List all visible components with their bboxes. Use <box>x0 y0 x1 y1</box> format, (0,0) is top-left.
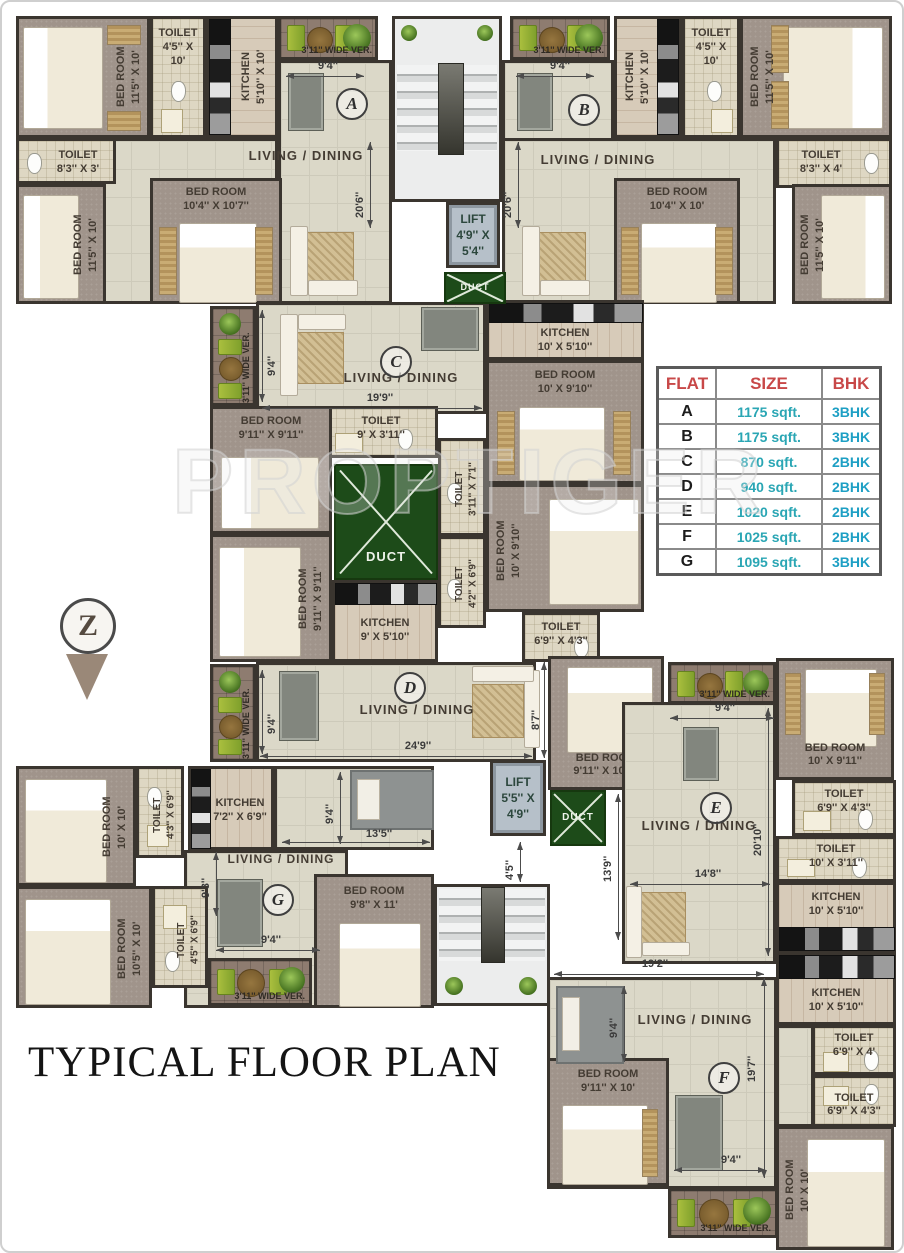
core-toilet-lower: TOILET4'2'' X 6'9'' <box>438 536 486 628</box>
flat-b-bedroom-1: BED ROOM11'5'' X 10' <box>740 16 892 138</box>
room-label: BED ROOM10'4'' X 10'7'' <box>153 186 279 214</box>
dim-label: 13'5'' <box>354 828 404 840</box>
toilet-icon <box>171 81 186 102</box>
room-label: BED ROOM11'5'' X 10' <box>114 25 145 129</box>
dim-label: 20'6'' <box>502 148 514 218</box>
room-label: BED ROOM10'4'' X 10' <box>617 186 737 214</box>
room-label: BED ROOM10'5'' X 10' <box>115 897 146 1001</box>
plant-icon <box>743 1197 771 1225</box>
flat-c-kitchen: KITCHEN10' X 5'10'' <box>486 300 644 360</box>
table-row: G1095 sqft.3BHK <box>658 549 881 575</box>
living-label: LIVING / DINING <box>628 1012 762 1028</box>
room-label: TOILET6'9'' X 4'3'' <box>795 788 893 816</box>
dim-label: 14'8'' <box>678 868 738 880</box>
bed <box>219 547 301 657</box>
room-label: KITCHEN5'10'' X 10' <box>623 27 654 127</box>
toilet-icon <box>864 153 879 174</box>
plant-icon <box>219 313 241 335</box>
dim-line <box>516 76 594 77</box>
dim-line <box>262 670 263 754</box>
chair <box>218 739 242 755</box>
dim-label: 9'4'' <box>700 702 750 714</box>
room-label: TOILET4'2'' X 6'9'' <box>453 543 481 625</box>
dim-label: 9'4'' <box>324 788 336 824</box>
room-label: KITCHEN10' X 5'10'' <box>779 891 893 919</box>
plant-icon <box>401 25 417 41</box>
room-label: BED ROOM9'11'' X 10' <box>550 1068 666 1096</box>
flat-letter-g: G <box>262 884 294 916</box>
flat-b-verandah: 3'11'' WIDE VER. <box>510 16 610 60</box>
rug <box>785 673 801 735</box>
flat-a-kitchen: KITCHEN5'10'' X 10' <box>206 16 278 138</box>
flat-b-bedroom-3: BED ROOM10'4'' X 10' <box>614 178 740 304</box>
lift-2: LIFT 5'5'' X 4'9'' <box>490 760 546 836</box>
room-label: BED ROOM11'5'' X 10' <box>748 25 779 129</box>
bed <box>23 27 103 129</box>
dim-line <box>674 1170 766 1171</box>
north-arrow-icon <box>66 654 108 700</box>
dim-label: 20'10'' <box>752 808 764 856</box>
staircase <box>392 16 502 202</box>
stair-landing <box>481 887 505 963</box>
dining-table <box>280 672 318 740</box>
sofa <box>472 666 534 682</box>
flat-e-toilet-1: TOILET6'9'' X 4'3'' <box>792 780 896 836</box>
room-label: TOILET6'9'' X 4'3'' <box>815 1092 893 1120</box>
toilet-icon <box>27 153 42 174</box>
bed <box>821 195 885 299</box>
kitchen-counter <box>779 927 895 951</box>
page-title: TYPICAL FLOOR PLAN <box>28 1038 501 1087</box>
flat-d-verandah: 3'11'' WIDE VER. <box>210 664 256 762</box>
duct-top: DUCT <box>444 272 506 304</box>
sofa <box>626 886 642 958</box>
verandah-label: 3'11'' WIDE VER. <box>241 315 251 403</box>
dim-label: 9'4'' <box>608 1002 620 1038</box>
dim-label: 9'4'' <box>530 60 590 72</box>
flat-f-verandah: 3'11'' WIDE VER. <box>668 1188 778 1238</box>
lift-label: LIFT 4'9'' X 5'4'' <box>449 211 497 260</box>
dim-label: 9'3'' <box>200 864 212 898</box>
rug <box>715 227 733 295</box>
sink-icon <box>711 109 733 133</box>
dim-line <box>262 408 482 409</box>
room-label: TOILET8'3'' X 4' <box>781 149 861 177</box>
sofa <box>357 779 380 820</box>
dim-line <box>670 718 774 719</box>
flat-a-toilet-1: TOILET4'5'' X 10' <box>150 16 206 138</box>
room-label: TOILET4'3'' X 6'9'' <box>151 773 179 857</box>
room-label: TOILET4'5'' X 10' <box>155 27 201 68</box>
bed <box>221 457 319 529</box>
duct-label: DUCT <box>446 282 504 292</box>
north-indicator-icon: Z <box>60 598 116 654</box>
verandah-label: 3'11'' WIDE VER. <box>701 1223 771 1233</box>
flat-size-table: FLAT SIZE BHK A1175 sqft.3BHK B1175 sqft… <box>656 366 882 576</box>
dim-line <box>624 986 625 1062</box>
table <box>219 715 243 739</box>
flat-letter-b: B <box>568 94 600 126</box>
flat-e-verandah: 3'11'' WIDE VER. <box>668 662 776 704</box>
room-label: BED ROOM10' X 10' <box>100 775 131 879</box>
verandah-label: 3'11'' WIDE VER. <box>241 673 251 759</box>
dim-line <box>630 884 770 885</box>
room-label: BED ROOM11'5'' X 10' <box>798 193 829 297</box>
flat-g-bedroom-3: BED ROOM9'8'' X 11' <box>314 874 434 1008</box>
table-row: C870 sqft.2BHK <box>658 449 881 474</box>
plant-icon <box>519 977 537 995</box>
core-toilet-upper: TOILET3'11'' X 7'1'' <box>438 438 486 536</box>
rug <box>613 411 631 475</box>
sofa <box>642 942 690 956</box>
dim-line <box>764 978 765 1178</box>
kitchen-counter <box>657 19 679 135</box>
bed <box>807 1139 885 1247</box>
floor-plan: BED ROOM11'5'' X 10' TOILET4'5'' X 10' K… <box>0 0 904 1253</box>
plant-icon <box>445 977 463 995</box>
chair <box>677 1199 695 1227</box>
dim-line <box>544 662 545 758</box>
sofa <box>298 314 346 330</box>
flat-g-bedroom-2: BED ROOM10'5'' X 10' <box>16 886 152 1008</box>
duct-label: DUCT <box>552 812 604 823</box>
room-label: KITCHEN5'10'' X 10' <box>239 27 270 127</box>
sofa <box>562 997 581 1051</box>
dim-label: 9'4'' <box>298 60 358 72</box>
bed <box>519 407 605 481</box>
living-label: LIVING / DINING <box>352 702 482 718</box>
flat-f-corridor <box>776 1025 814 1127</box>
flat-f-toilet-2: TOILET6'9'' X 4'3'' <box>812 1075 896 1127</box>
flat-e-bedroom-2: BED ROOM10' X 9'11'' <box>776 658 894 780</box>
table-row: A1175 sqft.3BHK <box>658 399 881 424</box>
toilet-icon <box>707 81 722 102</box>
dim-line <box>260 756 532 757</box>
dining-table <box>684 728 718 780</box>
dim-label: 8'7'' <box>530 690 542 730</box>
dim-label: 19'2'' <box>620 958 690 970</box>
sofa <box>280 314 298 396</box>
flat-f-toilet-1: TOILET6'9'' X 4' <box>812 1025 896 1075</box>
flat-letter-f: F <box>708 1062 740 1094</box>
table-header-row: FLAT SIZE BHK <box>658 368 881 400</box>
flat-b-toilet-1: TOILET4'5'' X 10' <box>682 16 740 138</box>
table-row: E1020 sqft.2BHK <box>658 499 881 524</box>
flat-e-kitchen: KITCHEN10' X 5'10'' <box>776 882 896 954</box>
living-label: LIVING / DINING <box>218 852 344 867</box>
kitchen-counter <box>489 303 643 323</box>
dim-label: 19'7'' <box>746 1036 758 1082</box>
sofa <box>540 280 590 296</box>
dim-line <box>262 310 263 402</box>
flat-g-toilet-1: TOILET4'3'' X 6'9'' <box>136 766 184 858</box>
table-row: F1025 sqft.2BHK <box>658 524 881 549</box>
kitchen-counter <box>191 769 211 849</box>
flat-d-toilet-3: TOILET6'9'' X 4'3'' <box>522 612 600 662</box>
room-label: TOILET4'5'' X 10' <box>687 27 735 68</box>
dim-line <box>216 950 320 951</box>
room-label: BED ROOM10' X 9'10'' <box>494 495 525 607</box>
flat-letter-c: C <box>380 346 412 378</box>
flat-a-bedroom-1: BED ROOM11'5'' X 10' <box>16 16 150 138</box>
chair <box>218 339 242 355</box>
plant-icon <box>279 967 305 993</box>
plant-icon <box>477 25 493 41</box>
lift-label: LIFT 5'5'' X 4'9'' <box>493 774 543 823</box>
dining-table <box>422 308 478 350</box>
flat-d-bedroom-2: BED ROOM10' X 9'10'' <box>486 484 644 612</box>
dim-label: 4'5'' <box>504 848 516 880</box>
flat-f-bedroom-1: BED ROOM9'11'' X 10' <box>547 1058 669 1186</box>
bed <box>25 899 111 1005</box>
flat-d-kitchen: KITCHEN9' X 5'10'' <box>332 580 438 662</box>
room-label: KITCHEN7'2'' X 6'9'' <box>209 797 271 825</box>
dim-line <box>520 842 521 882</box>
table-row: B1175 sqft.3BHK <box>658 424 881 449</box>
flat-a-bedroom-3: BED ROOM10'4'' X 10'7'' <box>150 178 282 304</box>
rug <box>621 227 639 295</box>
rug <box>255 227 273 295</box>
flat-c-bedroom-1: BED ROOM10' X 9'10'' <box>486 360 644 484</box>
flat-g-bedroom-1: BED ROOM10' X 10' <box>16 766 136 886</box>
flat-g-kitchen: KITCHEN7'2'' X 6'9'' <box>188 766 274 850</box>
room-label: BED ROOM10' X 10' <box>783 1137 814 1243</box>
chair <box>677 671 695 697</box>
flat-b-kitchen: KITCHEN5'10'' X 10' <box>614 16 682 138</box>
room-label: TOILET10' X 3'11'' <box>779 843 893 871</box>
flat-letter-e: E <box>700 792 732 824</box>
dim-label: 13'9'' <box>602 838 614 882</box>
dim-label: 24'9'' <box>388 740 448 752</box>
plant-icon <box>219 671 241 693</box>
verandah-label: 3'11'' WIDE VER. <box>534 45 604 55</box>
chair <box>218 383 242 399</box>
flat-c-bedroom-2: BED ROOM9'11'' X 9'11'' <box>210 406 332 534</box>
rug <box>497 411 515 475</box>
staircase-lower <box>434 884 550 1006</box>
lift-1: LIFT 4'9'' X 5'4'' <box>446 202 500 268</box>
verandah-label: 3'11'' WIDE VER. <box>235 991 305 1001</box>
duct-main: DUCT <box>334 464 438 580</box>
flat-letter-a: A <box>336 88 368 120</box>
room-label: TOILET6'9'' X 4' <box>815 1032 893 1060</box>
room-label: TOILET4'5'' X 6'9'' <box>175 895 203 985</box>
room-label: BED ROOM9'11'' X 9'11'' <box>296 543 327 655</box>
room-label: KITCHEN10' X 5'10'' <box>489 327 641 355</box>
bed <box>179 223 257 303</box>
col-flat: FLAT <box>658 368 717 400</box>
bed <box>641 223 717 303</box>
bed <box>339 923 421 1007</box>
dim-label: 9'4'' <box>266 690 278 734</box>
room-label: BED ROOM9'8'' X 11' <box>317 885 431 913</box>
tv-sitting-area <box>350 770 434 830</box>
rug <box>869 673 885 735</box>
flat-a-bedroom-2: BED ROOM11'5'' X 10' <box>16 184 106 304</box>
flat-c-verandah: 3'11'' WIDE VER. <box>210 306 256 406</box>
stair-landing <box>438 63 464 155</box>
flat-letter-d: D <box>394 672 426 704</box>
flat-f-bedroom-2: BED ROOM10' X 10' <box>776 1126 894 1250</box>
dim-line <box>618 794 619 940</box>
dim-label: 9'4'' <box>706 1154 756 1166</box>
room-label: BED ROOM10' X 9'10'' <box>489 369 641 397</box>
flat-b-toilet-2: TOILET8'3'' X 4' <box>776 138 892 188</box>
dim-label: 9'4'' <box>266 332 278 376</box>
dining-table <box>289 74 323 130</box>
flat-a-toilet-2: TOILET8'3'' X 3' <box>16 138 116 184</box>
chair <box>218 697 242 713</box>
room-label: TOILET3'11'' X 7'1'' <box>453 445 481 533</box>
room-label: BED ROOM10' X 9'11'' <box>779 742 891 770</box>
bed <box>25 779 107 883</box>
bed <box>549 499 639 605</box>
duct-label: DUCT <box>336 549 436 564</box>
sofa <box>522 226 540 296</box>
kitchen-counter <box>779 955 895 979</box>
room-label: TOILET6'9'' X 4'3'' <box>525 621 597 649</box>
flat-g-toilet-2: TOILET4'5'' X 6'9'' <box>152 886 208 988</box>
dining-table <box>518 74 552 130</box>
sofa <box>308 280 358 296</box>
bed <box>562 1105 648 1185</box>
dim-label: 19'9'' <box>350 392 410 404</box>
flat-a-verandah: 3'11'' WIDE VER. <box>278 16 378 60</box>
room-label: TOILET9' X 3'11'' <box>327 415 435 443</box>
duct-mid: DUCT <box>550 790 606 846</box>
kitchen-counter <box>209 19 231 135</box>
flat-b-bedroom-2: BED ROOM11'5'' X 10' <box>792 184 892 304</box>
flat-g-verandah: 3'11'' WIDE VER. <box>208 958 312 1006</box>
room-label: TOILET8'3'' X 3' <box>45 149 111 177</box>
dim-label: 9'4'' <box>246 934 296 946</box>
sink-icon <box>161 109 183 133</box>
room-label: BED ROOM11'5'' X 10' <box>71 193 102 297</box>
kitchen-counter <box>335 583 437 605</box>
table <box>219 357 243 381</box>
flat-d-bedroom-1: BED ROOM9'11'' X 9'11'' <box>210 534 332 662</box>
table-row: D940 sqft.2BHK <box>658 474 881 499</box>
flat-f-kitchen: KITCHEN10' X 5'10'' <box>776 952 896 1025</box>
dim-line <box>340 772 341 844</box>
dim-line <box>216 852 217 916</box>
room-label: KITCHEN9' X 5'10'' <box>335 617 435 645</box>
dim-line <box>282 842 430 843</box>
rug <box>159 227 177 295</box>
flat-e-toilet-2: TOILET10' X 3'11'' <box>776 836 896 882</box>
rug <box>642 1109 658 1177</box>
room-label: BED ROOM9'11'' X 9'11'' <box>213 415 329 443</box>
col-size: SIZE <box>716 368 822 400</box>
living-label: LIVING / DINING <box>518 152 678 168</box>
sofa <box>290 226 308 296</box>
dim-label: 20'6'' <box>354 148 366 218</box>
chair <box>217 969 235 995</box>
col-bhk: BHK <box>822 368 881 400</box>
bed <box>805 669 877 747</box>
room-label: KITCHEN10' X 5'10'' <box>779 987 893 1015</box>
dim-line <box>286 76 364 77</box>
verandah-label: 3'11'' WIDE VER. <box>302 45 372 55</box>
bed <box>783 27 883 129</box>
dim-line <box>554 974 764 975</box>
verandah-label: 3'11'' WIDE VER. <box>700 689 770 699</box>
flat-c-toilet-1: TOILET9' X 3'11'' <box>324 406 438 458</box>
